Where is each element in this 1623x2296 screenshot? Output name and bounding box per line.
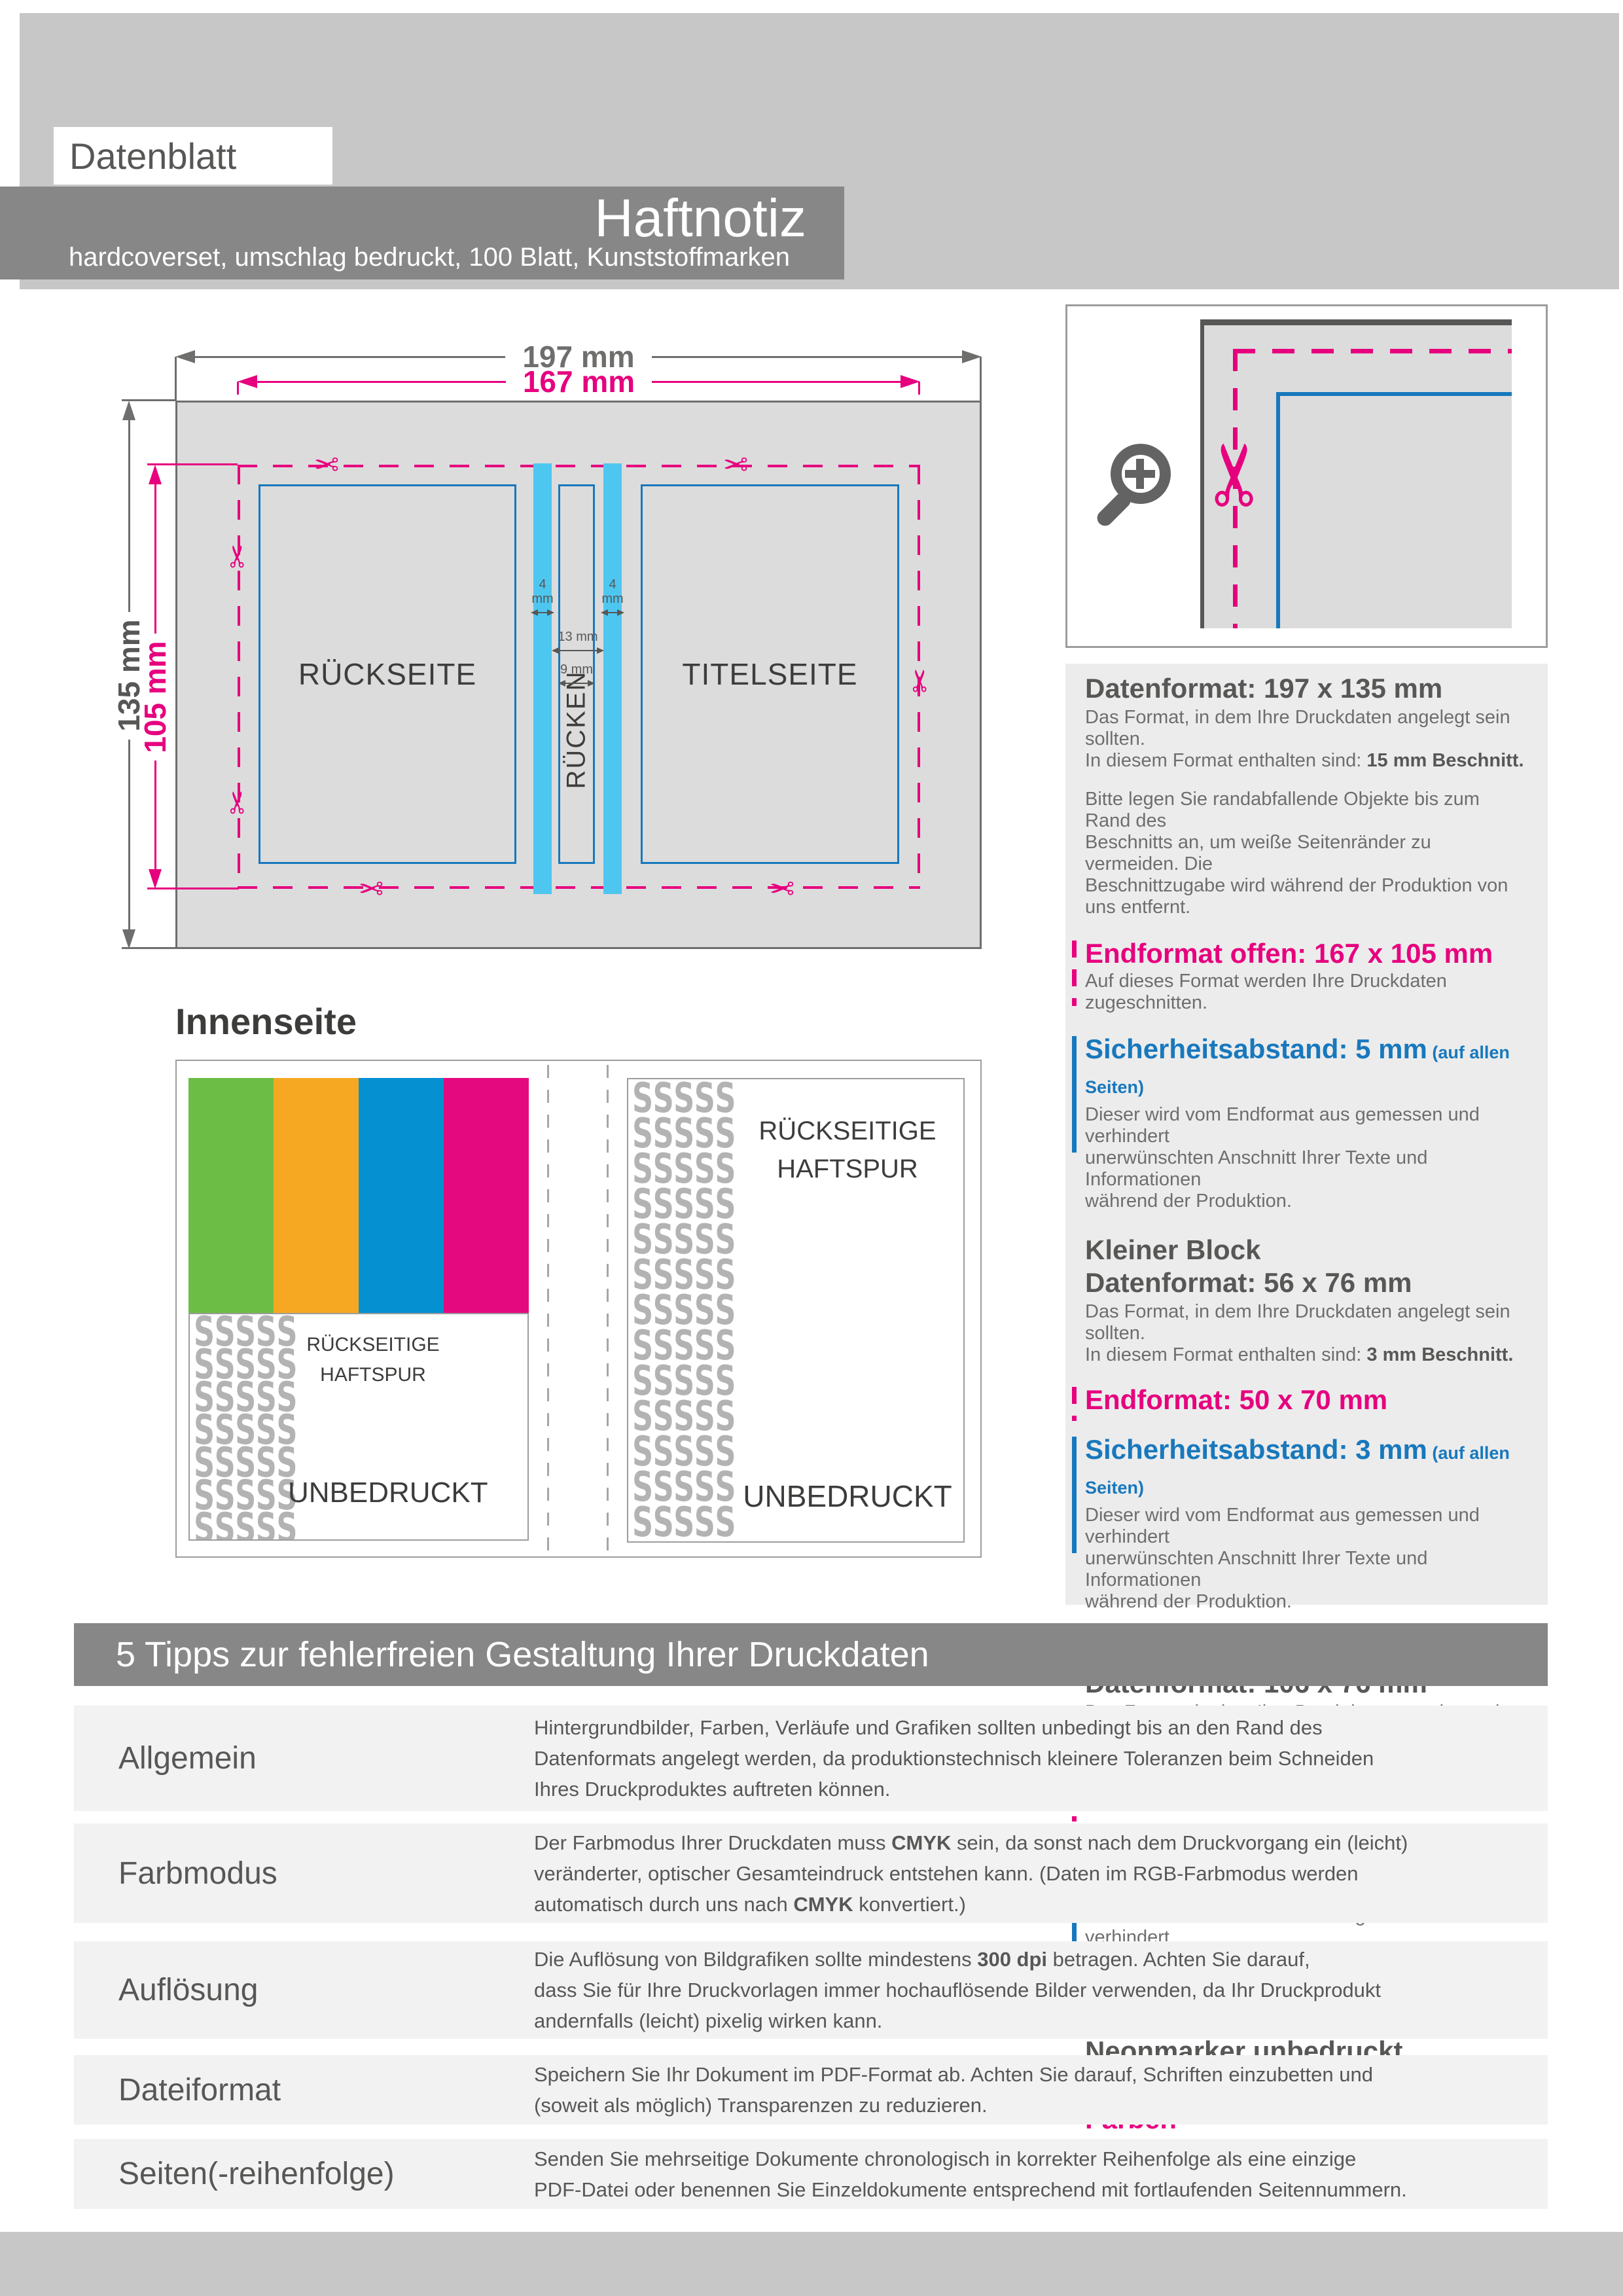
tip-text-line: Hintergrundbilder, Farben, Verläufe und … bbox=[534, 1712, 1374, 1743]
dimension-width-inner-label: 167 mm bbox=[506, 364, 652, 399]
arrow-down-icon bbox=[149, 869, 162, 889]
accent-line bbox=[1072, 1387, 1077, 1421]
tip-label: Auflösung bbox=[118, 1941, 259, 2039]
extension-line bbox=[980, 357, 982, 401]
info-text-line: Das Format, in dem Ihre Druckdaten angel… bbox=[1085, 1301, 1524, 1344]
accent-line bbox=[1072, 1437, 1077, 1553]
arrow-left-icon bbox=[238, 375, 257, 388]
dimension-height-inner-label: 105 mm bbox=[137, 641, 173, 753]
info-heading: Sicherheitsabstand: 5 mm (auf allen Seit… bbox=[1085, 1033, 1524, 1103]
adhesive-tab-right bbox=[603, 463, 622, 894]
info-text-line: Auf dieses Format werden Ihre Druckdaten… bbox=[1085, 971, 1524, 1014]
tip-text-line: veränderter, optischer Gesamteindruck en… bbox=[534, 1858, 1408, 1889]
tip-row: FarbmodusDer Farbmodus Ihrer Druckdaten … bbox=[74, 1823, 1548, 1923]
datenblatt-label-box: Datenblatt bbox=[54, 127, 332, 185]
scissors-icon: ✂ bbox=[314, 450, 340, 480]
front-label: TITELSEITE bbox=[682, 656, 857, 692]
info-heading: Endformat: 50 x 70 mm bbox=[1085, 1384, 1524, 1416]
tip-text-line: dass Sie für Ihre Druckvorlagen immer ho… bbox=[534, 1975, 1381, 2005]
dimension-width-inner: 167 mm bbox=[238, 367, 920, 397]
info-text-line: Beschnitts an, um weiße Seitenränder zu … bbox=[1085, 832, 1524, 875]
s-pattern-row: SSSSS bbox=[194, 1512, 298, 1541]
tip-text-line: Der Farbmodus Ihrer Druckdaten muss CMYK… bbox=[534, 1827, 1408, 1858]
tip-text-line: andernfalls (leicht) pixelig wirken kann… bbox=[534, 2005, 1381, 2036]
tip-row: DateiformatSpeichern Sie Ihr Dokument im… bbox=[74, 2055, 1548, 2125]
adhesive-pattern: SSSSSSSSSSSSSSSSSSSSSSSSSSSSSSSSSSS bbox=[194, 1316, 298, 1541]
info-text-line: Dieser wird vom Endformat aus gemessen u… bbox=[1085, 1104, 1524, 1147]
footer-band bbox=[0, 2232, 1623, 2296]
tip-text-line: Senden Sie mehrseitige Dokumente chronol… bbox=[534, 2144, 1407, 2174]
tip-text-line: Die Auflösung von Bildgrafiken sollte mi… bbox=[534, 1944, 1381, 1975]
tips-banner: 5 Tipps zur fehlerfreien Gestaltung Ihre… bbox=[74, 1623, 1548, 1686]
info-heading: Sicherheitsabstand: 3 mm (auf allen Seit… bbox=[1085, 1434, 1524, 1503]
accent-line bbox=[1072, 1036, 1077, 1153]
small-block-area: SSSSSSSSSSSSSSSSSSSSSSSSSSSSSSSSSSS RÜCK… bbox=[188, 1313, 529, 1541]
tab-gap-label: 13 mm bbox=[551, 630, 605, 644]
tab-width-arrow bbox=[601, 609, 624, 617]
info-text-line: Das Format, in dem Ihre Druckdaten angel… bbox=[1085, 707, 1524, 750]
back-safety-box: RÜCKSEITE bbox=[259, 484, 516, 864]
marker-color-bars bbox=[188, 1078, 529, 1313]
arrow-right-icon bbox=[962, 350, 982, 363]
format-info-panel: Datenformat: 197 x 135 mmDas Format, in … bbox=[1065, 664, 1548, 1605]
info-text-line: Beschnittzugabe wird während der Produkt… bbox=[1085, 875, 1524, 918]
tab-gap-arrow bbox=[552, 647, 604, 655]
tip-text: Hintergrundbilder, Farben, Verläufe und … bbox=[534, 1706, 1374, 1811]
tip-text: Speichern Sie Ihr Dokument im PDF-Format… bbox=[534, 2055, 1373, 2125]
info-heading: Datenformat: 56 x 76 mm bbox=[1085, 1267, 1524, 1299]
tip-text-line: (soweit als möglich) Transparenzen zu re… bbox=[534, 2090, 1373, 2121]
back-label: RÜCKSEITE bbox=[298, 656, 476, 692]
arrow-up-icon bbox=[149, 465, 162, 484]
datenblatt-label: Datenblatt bbox=[54, 135, 236, 177]
info-text-line: während der Produktion. bbox=[1085, 1591, 1524, 1613]
tip-label: Allgemein bbox=[118, 1706, 257, 1811]
safety-line-detail bbox=[1276, 392, 1280, 628]
arrow-up-icon bbox=[122, 401, 135, 420]
tip-label: Seiten(-reihenfolge) bbox=[118, 2139, 395, 2209]
info-text-line: Dieser wird vom Endformat aus gemessen u… bbox=[1085, 1505, 1524, 1548]
accent-line bbox=[1072, 941, 1077, 1006]
scissors-icon: ✂ bbox=[905, 668, 935, 694]
front-safety-box: TITELSEITE bbox=[641, 484, 899, 864]
adhesive-note: RÜCKSEITIGEHAFTSPUR bbox=[294, 1330, 452, 1390]
arrow-left-icon bbox=[175, 350, 195, 363]
scissors-icon: ✂ bbox=[723, 450, 749, 480]
tip-text-line: Speichern Sie Ihr Dokument im PDF-Format… bbox=[534, 2059, 1373, 2090]
scissors-icon: ✂ bbox=[223, 544, 253, 569]
tip-text: Der Farbmodus Ihrer Druckdaten muss CMYK… bbox=[534, 1823, 1408, 1923]
tip-label: Farbmodus bbox=[118, 1823, 277, 1923]
info-text-line: In diesem Format enthalten sind: 3 mm Be… bbox=[1085, 1344, 1524, 1366]
tip-text: Senden Sie mehrseitige Dokumente chronol… bbox=[534, 2139, 1407, 2209]
tip-row: AuflösungDie Auflösung von Bildgrafiken … bbox=[74, 1941, 1548, 2039]
zoom-detail-box: ✂ bbox=[1065, 304, 1548, 648]
corner-detail-illustration: ✂ bbox=[1200, 319, 1512, 628]
tips-banner-title: 5 Tipps zur fehlerfreien Gestaltung Ihre… bbox=[74, 1634, 929, 1675]
fold-line bbox=[547, 1065, 549, 1555]
info-heading: Datenformat: 197 x 135 mm bbox=[1085, 673, 1524, 704]
scissors-icon: ✂ bbox=[1200, 439, 1278, 511]
adhesive-tab-left bbox=[533, 463, 552, 894]
tip-text-line: PDF-Datei oder benennen Sie Einzeldokume… bbox=[534, 2174, 1407, 2205]
info-text-line: In diesem Format enthalten sind: 15 mm B… bbox=[1085, 750, 1524, 772]
tip-row: AllgemeinHintergrundbilder, Farben, Verl… bbox=[74, 1706, 1548, 1811]
spine-label: RÜCKEN bbox=[562, 671, 592, 789]
s-pattern-row: SSSSS bbox=[632, 1505, 737, 1540]
info-heading: Endformat offen: 167 x 105 mm bbox=[1085, 938, 1524, 969]
arrow-right-icon bbox=[901, 375, 920, 388]
adhesive-pattern: SSSSSSSSSSSSSSSSSSSSSSSSSSSSSSSSSSSSSSSS… bbox=[632, 1081, 737, 1540]
scissors-icon: ✂ bbox=[770, 874, 795, 904]
tip-row: Seiten(-reihenfolge)Senden Sie mehrseiti… bbox=[74, 2139, 1548, 2209]
info-text-line: während der Produktion. bbox=[1085, 1191, 1524, 1212]
title-band: Haftnotiz hardcoverset, umschlag bedruck… bbox=[0, 187, 844, 279]
unprinted-label: UNBEDRUCKT bbox=[740, 1479, 955, 1514]
spine-width-label: 9 mm bbox=[558, 662, 595, 677]
marker-bar-green bbox=[188, 1078, 274, 1313]
innenseite-heading: Innenseite bbox=[175, 1000, 357, 1043]
product-subtitle: hardcoverset, umschlag bedruckt, 100 Bla… bbox=[69, 243, 790, 272]
arrow-down-icon bbox=[122, 929, 135, 949]
tip-label: Dateiformat bbox=[118, 2055, 281, 2125]
large-block-area: SSSSSSSSSSSSSSSSSSSSSSSSSSSSSSSSSSSSSSSS… bbox=[627, 1078, 965, 1543]
tip-text-line: Datenformats angelegt werden, da produkt… bbox=[534, 1743, 1374, 1774]
fold-line bbox=[607, 1065, 609, 1555]
spine-width-arrow bbox=[558, 679, 595, 687]
product-title: Haftnotiz bbox=[594, 192, 806, 245]
extension-line bbox=[175, 357, 177, 401]
info-text-line: Bitte legen Sie randabfallende Objekte b… bbox=[1085, 789, 1524, 832]
tab-width-arrow bbox=[531, 609, 554, 617]
tab-width-label: 4mm bbox=[597, 577, 628, 606]
scissors-icon: ✂ bbox=[223, 790, 253, 816]
marker-bar-orange bbox=[274, 1078, 359, 1313]
info-heading: Kleiner Block bbox=[1085, 1234, 1524, 1266]
scissors-icon: ✂ bbox=[359, 874, 384, 904]
marker-bar-blue bbox=[359, 1078, 444, 1313]
info-text-line: unerwünschten Anschnitt Ihrer Texte und … bbox=[1085, 1548, 1524, 1591]
datasheet-page: Datenblatt Haftnotiz hardcoverset, umsch… bbox=[0, 0, 1623, 2296]
tip-text-line: Ihres Druckproduktes auftreten können. bbox=[534, 1774, 1374, 1804]
info-text-line: unerwünschten Anschnitt Ihrer Texte und … bbox=[1085, 1147, 1524, 1191]
unprinted-label: UNBEDRUCKT bbox=[288, 1477, 484, 1509]
adhesive-note: RÜCKSEITIGEHAFTSPUR bbox=[740, 1112, 955, 1188]
marker-bar-pink bbox=[444, 1078, 529, 1313]
tip-text-line: automatisch durch uns nach CMYK konverti… bbox=[534, 1889, 1408, 1920]
tab-width-label: 4mm bbox=[527, 577, 558, 606]
tip-text: Die Auflösung von Bildgrafiken sollte mi… bbox=[534, 1941, 1381, 2039]
innenseite-box: SSSSSSSSSSSSSSSSSSSSSSSSSSSSSSSSSSS RÜCK… bbox=[175, 1060, 982, 1558]
